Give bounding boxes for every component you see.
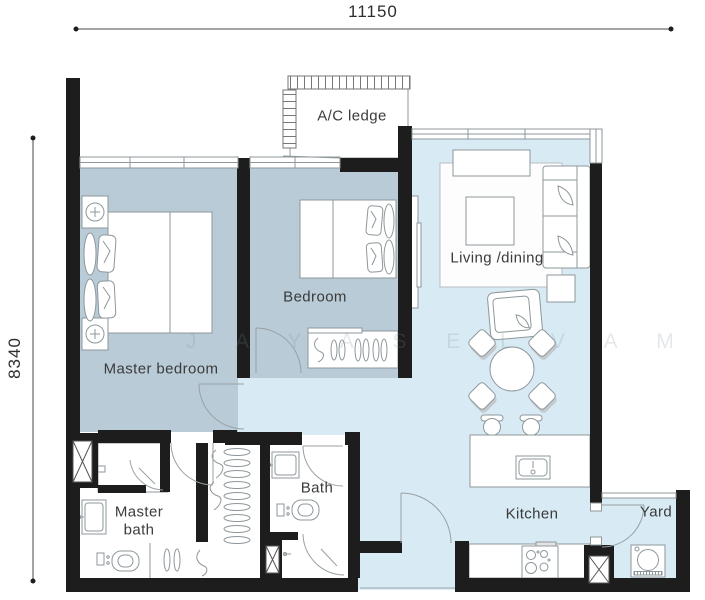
watermark: J A Y A S E L V A M (186, 330, 691, 354)
tv (417, 223, 421, 287)
shaft-x-icon (589, 556, 609, 583)
coffee-table (466, 197, 514, 245)
room-label-master-bath-line2: bath (124, 522, 155, 539)
room-label-living-dining: Living /dining (450, 250, 543, 267)
bedroom-bed (300, 200, 396, 278)
kitchen-counter (469, 542, 590, 578)
sofa (543, 166, 590, 268)
room-label-kitchen: Kitchen (506, 506, 559, 523)
stove (522, 546, 558, 578)
shaft-x-icon (73, 441, 92, 482)
sideboard (453, 150, 530, 176)
window (412, 129, 590, 139)
washing-machine (631, 545, 665, 577)
room-label-master-bath-line1: Master (115, 504, 163, 521)
window (80, 157, 238, 168)
room-label-ac-ledge: A/C ledge (317, 108, 386, 125)
window (250, 157, 340, 168)
left-dimension-label: 8340 (5, 337, 25, 379)
master-shower (98, 443, 168, 492)
room-label-master-bedroom: Master bedroom (104, 361, 219, 378)
yard-vent (602, 493, 676, 498)
window (590, 129, 602, 163)
room-label-yard: Yard (640, 504, 672, 521)
room-label-bath: Bath (301, 480, 333, 497)
shaft-x-icon (266, 546, 279, 573)
plan-drawing (0, 0, 705, 600)
side-table (547, 275, 575, 302)
room-label-bedroom: Bedroom (283, 289, 347, 306)
floor-plan: 11150 8340 A/C ledge Master bedroom Bedr… (0, 0, 705, 600)
top-dimension-label: 11150 (348, 2, 398, 22)
